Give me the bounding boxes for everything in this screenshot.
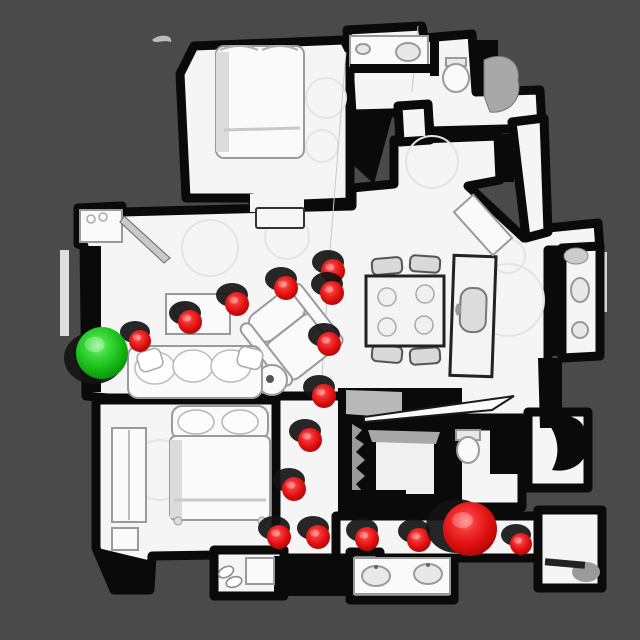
bed-shading [170, 440, 182, 518]
sphere-highlight [271, 529, 280, 536]
pillow [178, 410, 214, 434]
start-marker [76, 327, 128, 379]
waypoint-marker [355, 527, 379, 551]
closet-floor [376, 438, 434, 494]
waypoint-marker [510, 533, 532, 555]
waypoint-marker [274, 276, 298, 300]
waypoint-marker [178, 310, 202, 334]
sphere-highlight [278, 280, 287, 287]
fixture [564, 248, 588, 264]
dining-chair [409, 347, 440, 365]
side-table-item [266, 375, 274, 383]
sphere-highlight [452, 512, 473, 528]
wall-segment [274, 556, 346, 596]
waypoint-marker [225, 292, 249, 316]
viewer-stage [0, 0, 640, 640]
nightstand [112, 528, 138, 550]
plate [378, 288, 396, 306]
sofa [128, 345, 264, 398]
goal-marker [443, 502, 497, 556]
dining-table [366, 276, 444, 346]
faucet [374, 565, 378, 569]
pillow [222, 410, 258, 434]
scene-canvas[interactable] [0, 0, 640, 640]
waypoint-marker [282, 477, 306, 501]
sink-basin [356, 44, 370, 54]
bed-bottom-left [170, 436, 270, 520]
sphere-highlight [286, 481, 295, 488]
blanket-fold [224, 128, 300, 130]
door-panel [256, 208, 304, 228]
waypoint-marker [129, 330, 151, 352]
sphere-highlight [85, 337, 105, 353]
wall-segment [490, 426, 522, 474]
sphere-highlight [325, 263, 334, 270]
faucet [426, 563, 430, 567]
waypoint-marker [312, 384, 336, 408]
shelf-nook [80, 210, 122, 242]
plate [415, 316, 433, 334]
sofa-cushion [173, 350, 213, 382]
plate [378, 318, 396, 336]
island-sink [459, 288, 487, 333]
sphere-highlight [316, 388, 325, 395]
waypoint-marker [267, 525, 291, 549]
wall-segment [350, 64, 430, 73]
kitchen-island [450, 255, 496, 376]
sphere-highlight [229, 296, 238, 303]
bed-foot [174, 517, 182, 525]
sink-basin [396, 43, 420, 61]
wall-segment [430, 34, 439, 76]
waypoint-marker [317, 332, 341, 356]
dining-chair [371, 257, 402, 276]
wall-sliver [60, 250, 69, 336]
sphere-highlight [359, 531, 368, 538]
sphere-highlight [133, 334, 141, 341]
sphere-highlight [310, 529, 319, 536]
wall-segment [548, 252, 564, 356]
sphere-highlight [411, 532, 420, 539]
fixture [572, 322, 588, 338]
sphere-highlight [514, 537, 522, 544]
shoe-table [246, 558, 274, 584]
clothes-rail [368, 430, 440, 444]
bed-top-left [216, 46, 304, 158]
fixture [571, 278, 589, 302]
bed-shading [216, 52, 229, 152]
closet-bottom-band [346, 490, 406, 504]
sphere-highlight [321, 336, 330, 343]
dining-chair [409, 255, 440, 273]
sphere-highlight [182, 314, 191, 321]
toilet [443, 64, 469, 92]
sphere-highlight [324, 285, 333, 292]
waypoint-marker [306, 525, 330, 549]
waypoint-marker [298, 428, 322, 452]
plate [416, 285, 434, 303]
waypoint-marker [320, 281, 344, 305]
wall-segment [500, 134, 514, 182]
bathroom-bottom-furniture [354, 558, 450, 594]
toilet [457, 437, 479, 463]
sphere-highlight [302, 432, 311, 439]
dining-chair [371, 345, 402, 364]
